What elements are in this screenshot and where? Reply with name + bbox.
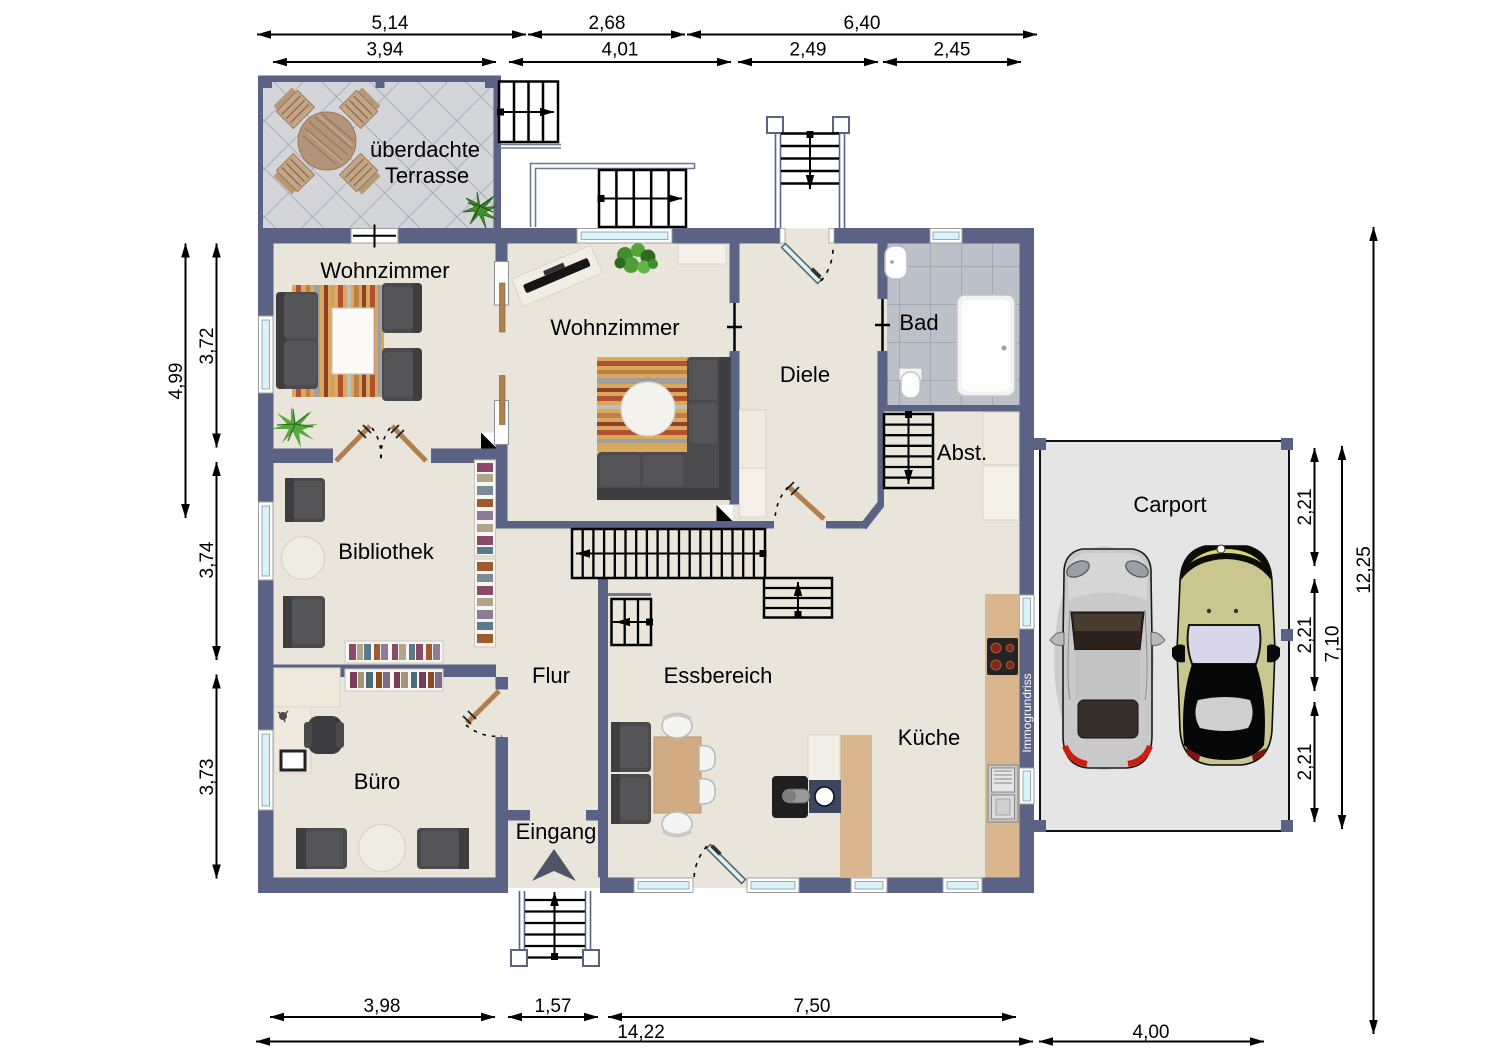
svg-text:Terrasse: Terrasse [385,163,469,188]
svg-text:4,99: 4,99 [166,363,187,400]
svg-text:3,72: 3,72 [197,328,218,365]
svg-text:Bad: Bad [899,310,938,335]
svg-text:Essbereich: Essbereich [664,663,773,688]
svg-text:6,40: 6,40 [844,13,881,34]
svg-text:Diele: Diele [780,362,830,387]
svg-text:2,45: 2,45 [934,40,971,61]
svg-text:3,74: 3,74 [197,541,218,578]
svg-text:Immogrundriss: Immogrundriss [1020,673,1034,752]
svg-text:3,98: 3,98 [364,996,401,1017]
svg-text:überdachte: überdachte [370,137,480,162]
svg-text:3,73: 3,73 [197,759,218,796]
svg-text:4,01: 4,01 [602,40,639,61]
svg-text:Carport: Carport [1133,492,1206,517]
svg-text:2,68: 2,68 [589,13,626,34]
svg-text:2,49: 2,49 [790,40,827,61]
svg-text:Flur: Flur [532,663,570,688]
svg-text:Abst.: Abst. [937,440,987,465]
svg-text:Wohnzimmer: Wohnzimmer [320,258,449,283]
svg-text:4,00: 4,00 [1133,1022,1170,1043]
svg-text:2,21: 2,21 [1295,617,1316,654]
svg-text:Büro: Büro [354,769,400,794]
svg-text:7,10: 7,10 [1323,626,1344,663]
svg-text:Eingang: Eingang [516,819,597,844]
svg-text:5,14: 5,14 [372,13,409,34]
svg-text:2,21: 2,21 [1295,744,1316,781]
svg-text:3,94: 3,94 [367,40,404,61]
svg-text:Wohnzimmer: Wohnzimmer [550,315,679,340]
svg-text:7,50: 7,50 [794,996,831,1017]
svg-text:1,57: 1,57 [535,996,572,1017]
svg-text:Bibliothek: Bibliothek [338,539,434,564]
svg-text:14,22: 14,22 [617,1022,665,1043]
svg-text:Küche: Küche [898,725,960,750]
svg-text:2,21: 2,21 [1295,489,1316,526]
svg-text:12,25: 12,25 [1354,546,1375,594]
